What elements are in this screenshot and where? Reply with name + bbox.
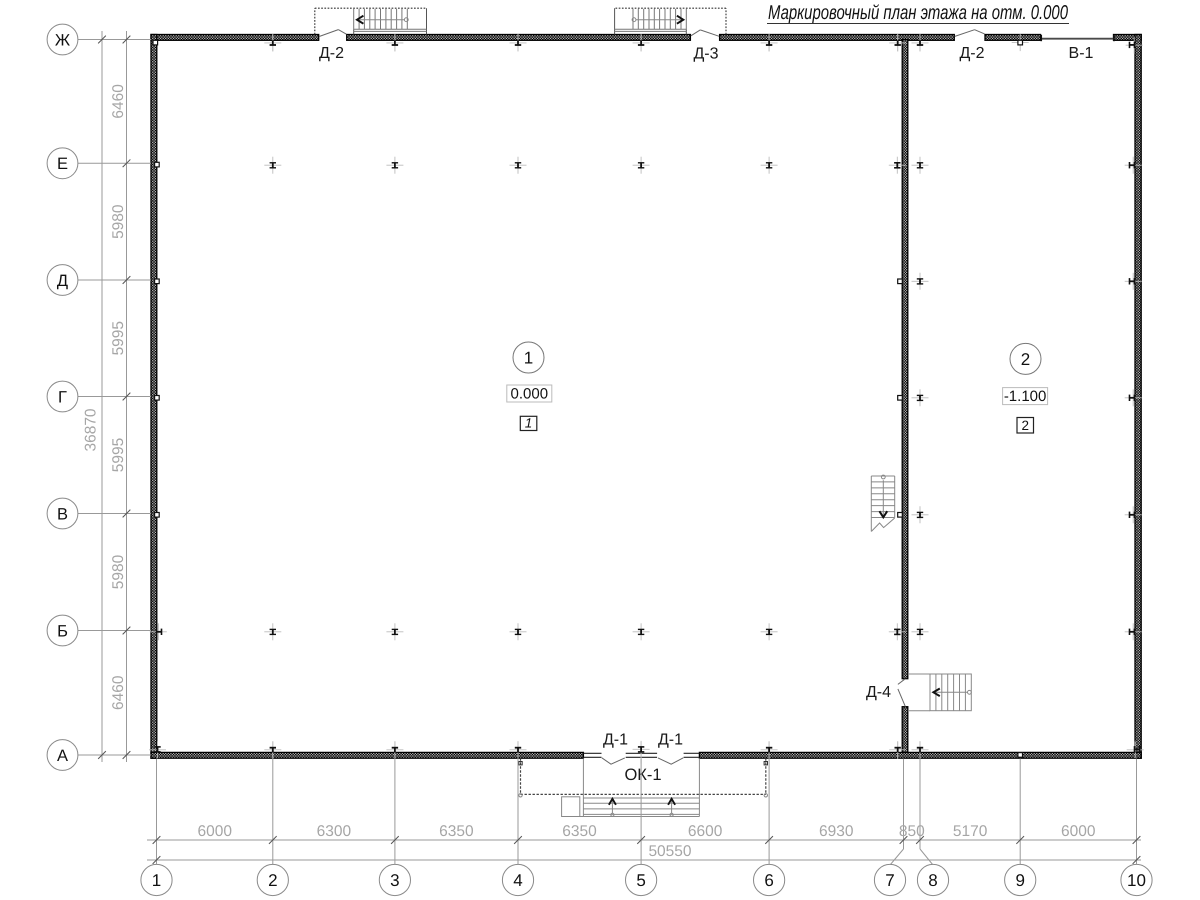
svg-text:36870: 36870 bbox=[83, 408, 100, 451]
svg-text:7: 7 bbox=[885, 871, 894, 890]
svg-text:-1.100: -1.100 bbox=[1004, 388, 1047, 405]
svg-text:6000: 6000 bbox=[1061, 823, 1096, 840]
svg-text:6300: 6300 bbox=[317, 823, 352, 840]
svg-text:6930: 6930 bbox=[819, 823, 854, 840]
svg-text:10: 10 bbox=[1127, 871, 1146, 890]
svg-text:ОК-1: ОК-1 bbox=[624, 766, 661, 784]
svg-text:4: 4 bbox=[513, 871, 522, 890]
svg-text:Маркировочный план этажа на от: Маркировочный план этажа на отм. 0.000 bbox=[768, 2, 1068, 24]
svg-text:8: 8 bbox=[928, 871, 937, 890]
svg-text:6: 6 bbox=[764, 871, 773, 890]
svg-text:1: 1 bbox=[524, 349, 533, 368]
svg-text:6460: 6460 bbox=[110, 675, 127, 710]
svg-text:6600: 6600 bbox=[688, 823, 723, 840]
svg-text:Д-1: Д-1 bbox=[658, 732, 683, 749]
svg-text:5995: 5995 bbox=[110, 321, 127, 355]
svg-text:Д-2: Д-2 bbox=[959, 45, 984, 62]
svg-text:Д-1: Д-1 bbox=[603, 732, 628, 749]
svg-text:2: 2 bbox=[268, 871, 277, 890]
svg-text:В-1: В-1 bbox=[1069, 45, 1094, 62]
svg-text:1: 1 bbox=[152, 871, 161, 890]
svg-text:6350: 6350 bbox=[562, 823, 597, 840]
svg-text:Е: Е bbox=[57, 155, 68, 173]
svg-text:2: 2 bbox=[1021, 350, 1030, 369]
svg-text:2: 2 bbox=[1021, 418, 1029, 433]
svg-text:5: 5 bbox=[636, 871, 645, 890]
svg-text:9: 9 bbox=[1015, 871, 1024, 890]
svg-text:6350: 6350 bbox=[439, 823, 474, 840]
svg-text:Д-2: Д-2 bbox=[319, 45, 344, 62]
svg-text:Ж: Ж bbox=[55, 31, 71, 49]
svg-text:Д: Д bbox=[57, 272, 68, 290]
svg-text:0.000: 0.000 bbox=[511, 386, 549, 403]
svg-text:850: 850 bbox=[899, 823, 925, 840]
svg-text:5980: 5980 bbox=[110, 554, 127, 589]
svg-text:Д-4: Д-4 bbox=[866, 684, 891, 701]
svg-text:Б: Б bbox=[57, 622, 68, 640]
svg-text:В: В bbox=[57, 505, 68, 523]
svg-text:5170: 5170 bbox=[953, 823, 988, 840]
svg-text:5980: 5980 bbox=[110, 204, 127, 239]
svg-text:Г: Г bbox=[58, 388, 67, 406]
svg-text:Д-3: Д-3 bbox=[693, 46, 718, 63]
svg-text:3: 3 bbox=[390, 871, 399, 890]
svg-text:1: 1 bbox=[525, 416, 533, 431]
svg-text:50550: 50550 bbox=[648, 843, 691, 860]
svg-text:А: А bbox=[57, 747, 68, 765]
svg-text:6460: 6460 bbox=[110, 84, 127, 119]
svg-text:5995: 5995 bbox=[110, 438, 127, 472]
svg-text:6000: 6000 bbox=[197, 823, 232, 840]
